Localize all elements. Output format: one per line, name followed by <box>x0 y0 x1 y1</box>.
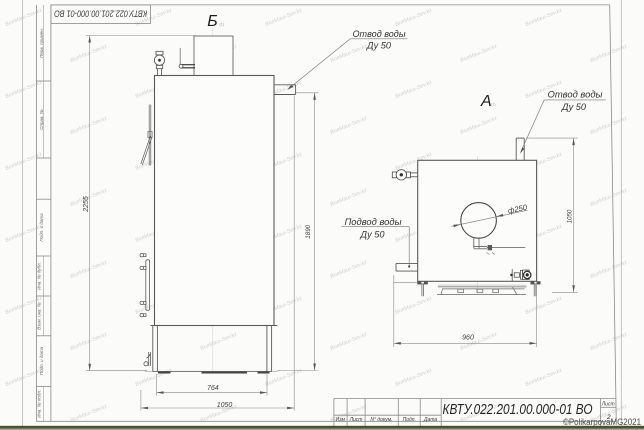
svg-text:Ду 50: Ду 50 <box>561 102 587 112</box>
svg-text:КВТУ.022.201.00.000-01 ВО: КВТУ.022.201.00.000-01 ВО <box>443 401 593 418</box>
svg-text:960: 960 <box>462 334 474 341</box>
svg-text:Взам. инв. №: Взам. инв. № <box>36 302 41 330</box>
svg-text:1050: 1050 <box>567 209 574 223</box>
svg-text:Отвод воды: Отвод воды <box>548 90 603 100</box>
svg-text:Отвод воды: Отвод воды <box>353 29 406 39</box>
svg-text:(1): (1) <box>491 103 495 107</box>
svg-text:1890: 1890 <box>305 224 312 238</box>
svg-text:Изм: Изм <box>336 417 346 423</box>
svg-text:А: А <box>480 93 492 110</box>
svg-text:Дата: Дата <box>423 417 437 423</box>
svg-text:Инв. № подл.: Инв. № подл. <box>36 390 41 418</box>
svg-text:Подп. и дата: Подп. и дата <box>39 213 44 242</box>
svg-text:Лист: Лист <box>601 401 615 407</box>
svg-text:1050: 1050 <box>217 402 233 409</box>
svg-text:КВТУ.022.201.00.000-01 ВО: КВТУ.022.201.00.000-01 ВО <box>54 7 147 18</box>
svg-text:Подп.: Подп. <box>403 417 416 423</box>
svg-text:764: 764 <box>207 385 219 392</box>
svg-text:Подп. и дата: Подп. и дата <box>39 346 44 375</box>
svg-text:Справ. №: Справ. № <box>39 109 44 130</box>
svg-text:Ду 50: Ду 50 <box>360 229 386 239</box>
svg-text:Инв. № дубл.: Инв. № дубл. <box>36 262 41 290</box>
svg-text:Перв. примен.: Перв. примен. <box>39 28 44 58</box>
svg-text:(1): (1) <box>220 23 224 27</box>
svg-text:Ду 50: Ду 50 <box>366 41 392 51</box>
svg-text:N° докум.: N° докум. <box>370 417 392 423</box>
svg-text:Лист: Лист <box>349 417 363 423</box>
svg-text:2255: 2255 <box>83 196 90 213</box>
svg-text:Б: Б <box>207 13 217 30</box>
svg-text:Подвод воды: Подвод воды <box>345 217 402 227</box>
